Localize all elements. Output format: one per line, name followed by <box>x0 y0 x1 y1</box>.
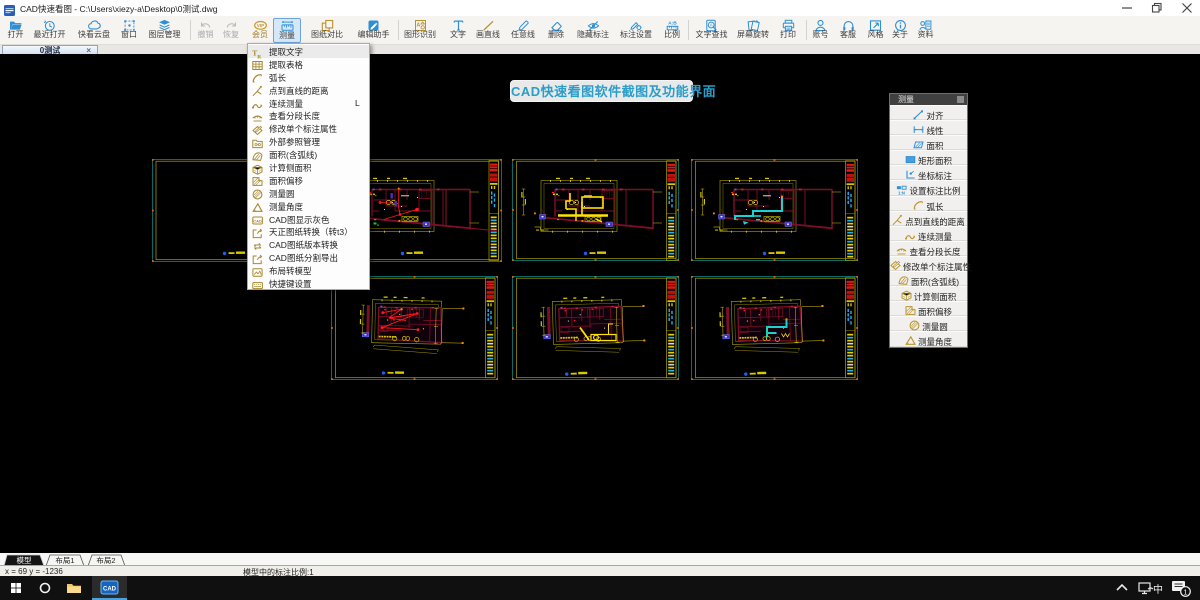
svg-text:CAD: CAD <box>103 587 117 593</box>
svg-text:A: A <box>710 23 713 28</box>
svg-text:CAD: CAD <box>253 219 262 224</box>
svg-text:布局2: 布局2 <box>96 555 115 565</box>
svg-text:A: A <box>416 22 420 28</box>
svg-text:布局1: 布局1 <box>55 555 74 565</box>
svg-text:VIP: VIP <box>256 23 263 28</box>
svg-text:1: 1 <box>1183 587 1187 596</box>
svg-text:模型: 模型 <box>17 555 32 565</box>
svg-text:1:N: 1:N <box>899 191 906 196</box>
